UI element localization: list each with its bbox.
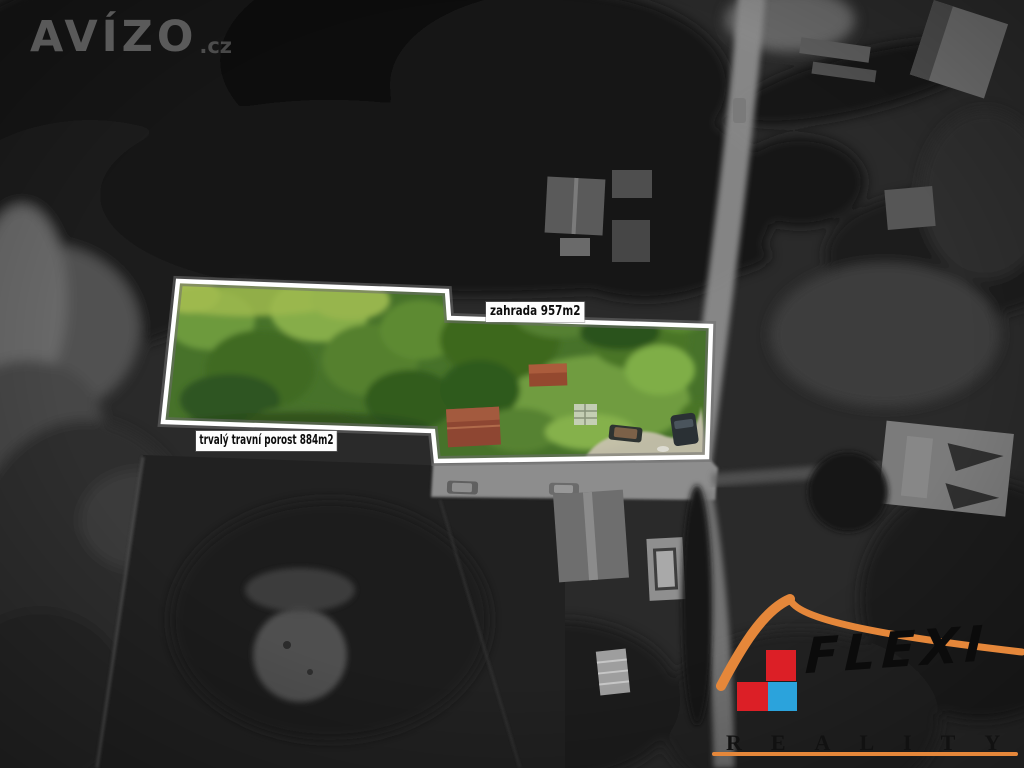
logo-square-blue [768,682,797,711]
real-estate-aerial-photo: AVÍZO .cz zahrada 957m2 trvalý travní po… [0,0,1024,768]
logo-square-red-top [766,650,796,681]
flexi-reality-logo: FLEXI REALITY [700,590,1024,768]
logo-underline [712,752,1018,756]
grassland-area-label: trvalý travní porost 884m2 [196,431,337,451]
logo-square-red-left [737,682,768,711]
garden-area-label: zahrada 957m2 [486,302,584,322]
